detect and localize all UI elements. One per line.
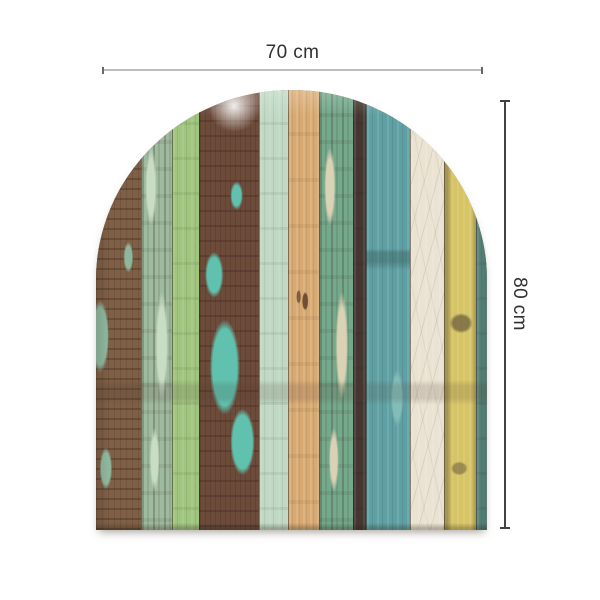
plank-cream: [410, 90, 444, 530]
height-line-top-cap: [500, 100, 510, 102]
product-figure: 70 cm 80 cm: [0, 0, 600, 600]
plank-apple-green: [172, 90, 199, 530]
plank-dark-brown: [353, 90, 366, 530]
width-line-left-tick: [102, 67, 104, 74]
plank-brown-turquoise-peel: [199, 90, 259, 530]
plank-yellow: [444, 90, 476, 530]
width-line-right-tick: [481, 67, 483, 74]
planks-row: [96, 90, 487, 530]
plank-rustic-brown: [96, 90, 141, 530]
plank-green-mottled: [319, 90, 353, 530]
height-dimension-label: 80 cm: [508, 277, 530, 331]
plank-teal-blue: [366, 90, 410, 530]
width-dimension-label: 70 cm: [102, 42, 483, 64]
plank-tan-wood: [288, 90, 319, 530]
plank-pale-seafoam: [259, 90, 288, 530]
width-dimension-line: [102, 69, 483, 71]
height-line-bottom-cap: [500, 527, 510, 529]
plank-dark-teal-edge: [476, 90, 487, 530]
arched-wood-panel: [96, 90, 487, 530]
height-dimension-line: [504, 100, 506, 529]
plank-seafoam-mottled: [141, 90, 172, 530]
